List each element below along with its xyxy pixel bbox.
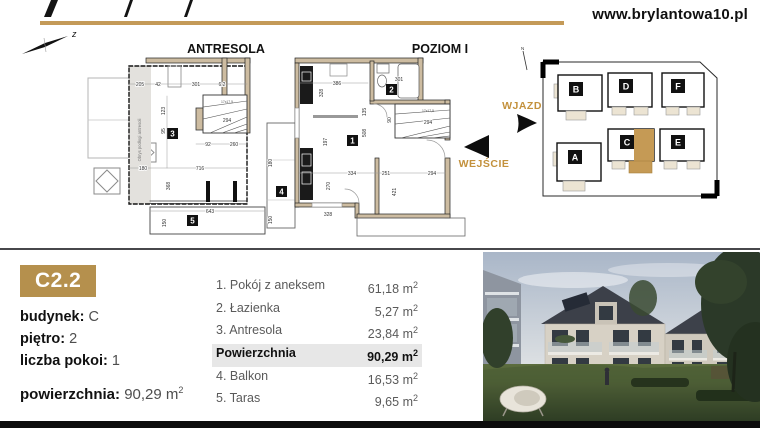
compass-north-arrow: z (22, 29, 77, 54)
entrance-label: WEJŚCIE (459, 157, 510, 170)
svg-text:42: 42 (155, 82, 161, 88)
plan-antresola: ANTRESOLA Obrys podłogi antresoli (88, 42, 265, 234)
svg-text:2: 2 (389, 86, 394, 95)
entrance-arrow: WEJŚCIE (459, 135, 510, 170)
svg-text:334: 334 (348, 171, 357, 177)
room-marker-5: 5 (187, 215, 198, 226)
svg-text:E: E (675, 138, 681, 148)
bottom-bar (0, 421, 760, 428)
detail-building: budynek: C (20, 306, 183, 328)
svg-text:421: 421 (392, 188, 398, 197)
lower-balcony-outline (357, 218, 465, 236)
svg-text:301: 301 (192, 82, 201, 88)
svg-text:N: N (521, 46, 524, 51)
svg-text:123: 123 (161, 107, 167, 116)
table-row-total: Powierzchnia 90,29 m2 (212, 344, 422, 367)
detail-rooms: liczba pokoi: 1 (20, 350, 183, 372)
room-marker-2: 2 (386, 84, 397, 95)
svg-text:5: 5 (190, 217, 195, 226)
svg-text:643: 643 (206, 209, 215, 215)
mezzanine-note: Obrys podłogi antresoli (137, 119, 142, 162)
svg-text:6.2: 6.2 (219, 82, 226, 88)
svg-text:z: z (71, 29, 77, 39)
balcony-outline (267, 123, 295, 228)
svg-text:90: 90 (387, 117, 393, 123)
kitchen-counters (300, 64, 358, 200)
room-area-table: 1. Pokój z aneksem 61,18 m2 2. Łazienka … (212, 276, 422, 412)
siteplan-building-C[interactable]: C (608, 129, 654, 173)
svg-text:301: 301 (395, 77, 404, 83)
svg-text:294: 294 (424, 120, 433, 126)
plan-poziom1-title: POZIOM I (412, 42, 468, 56)
svg-text:328: 328 (324, 212, 333, 218)
svg-text:508: 508 (362, 129, 368, 138)
svg-text:F: F (675, 82, 681, 92)
driveway-label: WJAZD (502, 100, 542, 112)
driveway-arrow: WJAZD (502, 100, 542, 133)
svg-text:150: 150 (268, 216, 274, 225)
highlighted-unit-area (634, 129, 654, 161)
svg-text:197: 197 (323, 138, 329, 147)
room-marker-3: 3 (167, 128, 178, 139)
svg-text:D: D (623, 82, 630, 92)
siteplan-compass: N (521, 46, 527, 70)
svg-text:328: 328 (319, 89, 325, 98)
stairs: 17x17,5 294 (203, 95, 247, 133)
svg-text:270: 270 (326, 182, 332, 191)
svg-text:205: 205 (136, 82, 145, 88)
svg-text:368: 368 (166, 182, 172, 191)
page: www.brylantowa10.pl z ANTRESOLA O (0, 0, 760, 428)
unit-code-badge: C2.2 (20, 265, 96, 297)
svg-text:150: 150 (162, 219, 168, 228)
svg-text:260: 260 (230, 142, 239, 148)
plan-poziom1: POZIOM I 4 (267, 42, 468, 236)
skylight (94, 168, 120, 194)
svg-text:92: 92 (205, 142, 211, 148)
svg-text:251: 251 (382, 171, 391, 177)
svg-text:294: 294 (428, 171, 437, 177)
svg-text:135: 135 (362, 108, 368, 117)
table-row: 2. Łazienka 5,27 m2 (212, 299, 422, 322)
table-row: 1. Pokój z aneksem 61,18 m2 (212, 276, 422, 299)
table-row: 5. Taras 9,65 m2 (212, 389, 422, 412)
building-render-photo (483, 252, 760, 421)
panel-separator (0, 248, 760, 250)
stairs: 17x17,5 294 (395, 104, 450, 138)
unit-details: budynek: C piętro: 2 liczba pokoi: 1 pow… (20, 306, 183, 406)
table-row: 4. Balkon 16,53 m2 (212, 367, 422, 390)
svg-text:180: 180 (268, 159, 274, 168)
table-row: 3. Antresola 23,84 m2 (212, 321, 422, 344)
svg-text:C: C (624, 138, 631, 148)
svg-text:4: 4 (279, 188, 284, 197)
svg-text:1: 1 (350, 137, 355, 146)
site-plan: N B D (521, 46, 717, 196)
detail-area: powierzchnia: 90,29 m2 (20, 379, 183, 406)
room-marker-4: 4 (276, 186, 287, 197)
svg-text:3: 3 (170, 130, 175, 139)
plans-area: z ANTRESOLA Obrys podłogi antresoli (0, 0, 760, 250)
svg-text:716: 716 (196, 166, 205, 172)
svg-text:A: A (572, 153, 579, 163)
svg-text:294: 294 (223, 118, 232, 124)
svg-text:386: 386 (333, 81, 342, 87)
svg-text:17x17,5: 17x17,5 (221, 100, 233, 104)
svg-text:17x17,5: 17x17,5 (422, 109, 434, 113)
plan-antresola-title: ANTRESOLA (187, 42, 265, 56)
svg-text:B: B (573, 85, 580, 95)
detail-floor: piętro: 2 (20, 328, 183, 350)
svg-text:180: 180 (139, 166, 148, 172)
room-marker-1: 1 (347, 135, 358, 146)
svg-text:95: 95 (161, 128, 167, 134)
